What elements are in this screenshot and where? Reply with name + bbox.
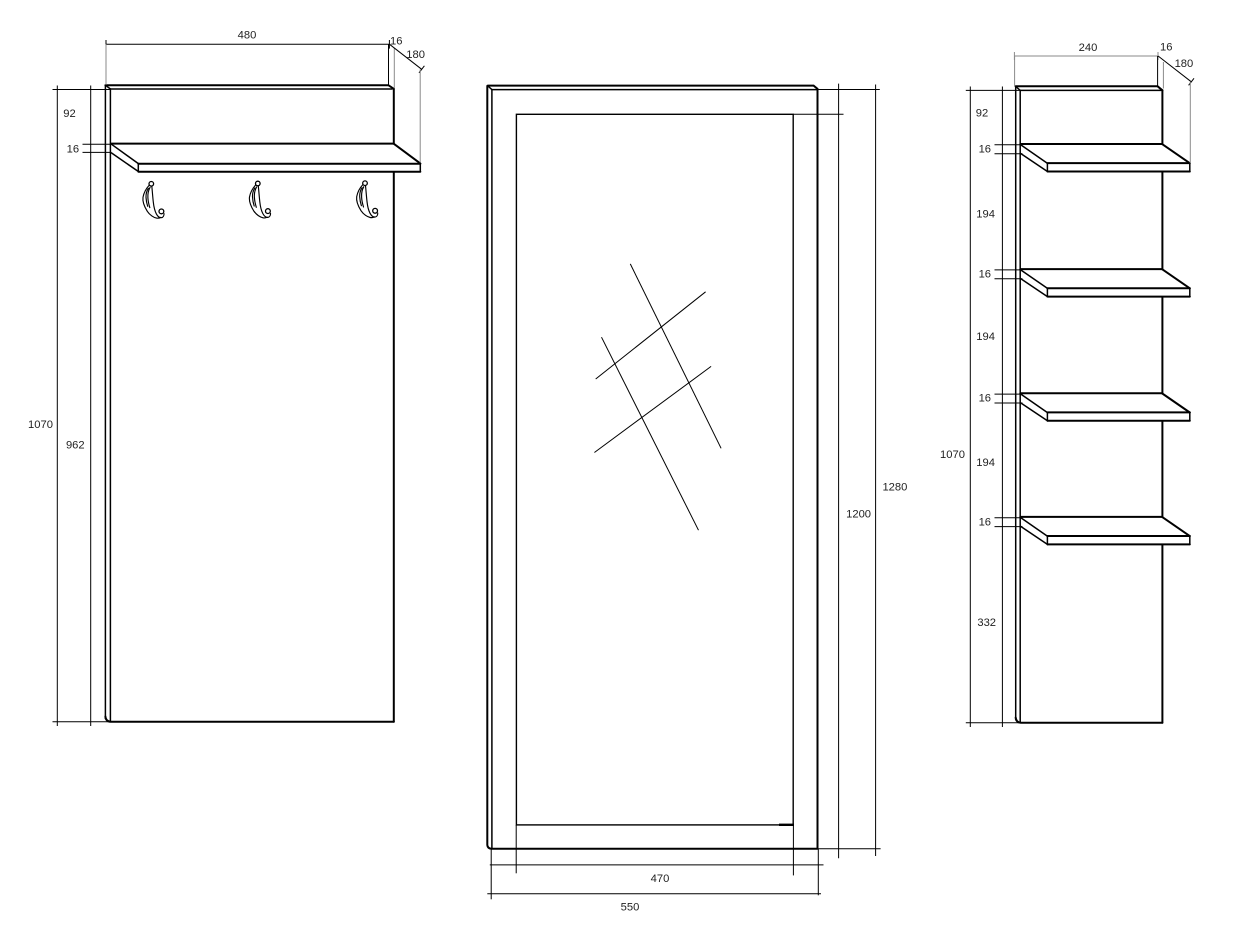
svg-text:194: 194 [976,209,995,221]
svg-text:16: 16 [390,35,402,47]
svg-text:16: 16 [979,143,991,155]
svg-text:194: 194 [976,457,995,469]
svg-text:240: 240 [1079,42,1098,54]
svg-text:16: 16 [979,393,991,405]
svg-text:1070: 1070 [28,419,53,431]
svg-text:16: 16 [979,269,991,281]
svg-text:550: 550 [621,901,640,913]
svg-text:1070: 1070 [940,449,965,461]
svg-text:92: 92 [63,108,75,120]
svg-text:194: 194 [976,331,995,343]
svg-text:332: 332 [977,617,996,629]
svg-text:92: 92 [976,107,988,119]
svg-text:16: 16 [67,143,79,155]
svg-text:1200: 1200 [846,509,871,521]
svg-text:16: 16 [979,516,991,528]
svg-text:470: 470 [651,873,670,885]
svg-text:180: 180 [1175,58,1194,70]
svg-text:16: 16 [1160,42,1172,54]
svg-text:480: 480 [238,29,257,41]
svg-text:180: 180 [406,49,425,61]
svg-text:962: 962 [66,440,85,452]
svg-text:1280: 1280 [882,482,907,494]
